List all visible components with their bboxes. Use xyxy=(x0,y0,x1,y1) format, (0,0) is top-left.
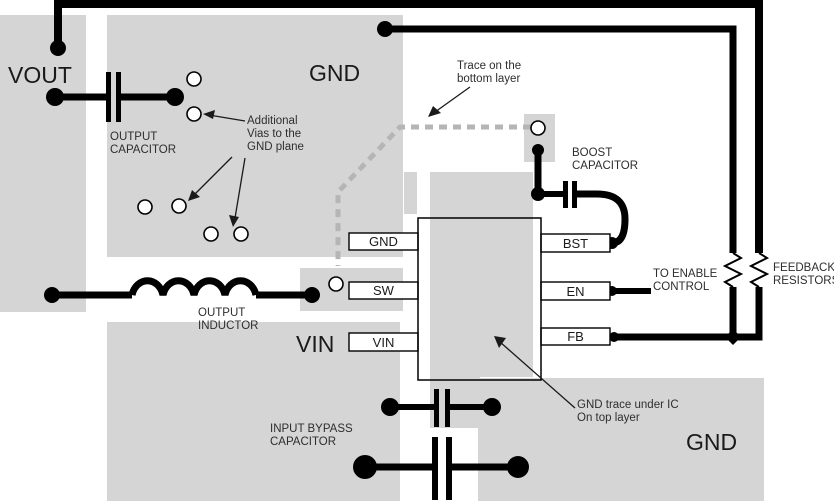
output-capacitor-label: CAPACITOR xyxy=(110,144,176,156)
gnd-via xyxy=(234,227,248,241)
input-cap1-plate-left xyxy=(434,389,439,427)
vin-label: VIN xyxy=(296,331,334,357)
gnd-plane-bridge xyxy=(404,172,417,214)
additional-vias-label: GND plane xyxy=(247,141,304,153)
gnd-via xyxy=(187,107,201,121)
input-cap1-plate-right xyxy=(445,389,450,427)
gnd-via xyxy=(187,72,201,86)
sw-via xyxy=(329,277,343,291)
output-inductor-label: INDUCTOR xyxy=(198,320,258,332)
bottom-trace-arrow-head xyxy=(428,106,441,117)
gnd-trace-under-ic-region xyxy=(430,172,533,377)
boost-capacitor-label: BOOST xyxy=(572,147,612,159)
gnd-bottom-label: GND xyxy=(686,429,737,455)
output-cap-plate-left xyxy=(106,72,111,122)
feedback-resistor-lower xyxy=(725,253,741,287)
additional-vias-label: Vias to the xyxy=(247,128,301,140)
pin-vin-label: VIN xyxy=(373,335,395,350)
gnd-via xyxy=(172,199,186,213)
pin-fb-label: FB xyxy=(567,329,584,344)
additional-vias-label: Additional xyxy=(247,115,298,127)
gnd-trace-under-ic-label: GND trace under IC xyxy=(577,399,679,411)
gnd-via xyxy=(138,200,152,214)
copper-planes xyxy=(0,15,764,501)
boost-via xyxy=(531,121,545,135)
vout-label: VOUT xyxy=(8,62,72,88)
inductor-pad-left xyxy=(44,287,60,303)
input-cap2-plate-right xyxy=(446,437,452,500)
input-cap1-pad-right xyxy=(483,398,501,416)
output-cap-plate-right xyxy=(116,72,121,122)
gnd-top-label: GND xyxy=(309,60,360,86)
gnd-via-pad xyxy=(377,21,393,37)
input-cap1-pad-left xyxy=(381,398,399,416)
output-cap-pad-right xyxy=(166,88,184,106)
fb-junction-dot xyxy=(725,329,741,345)
gnd-trace-under-ic-label: On top layer xyxy=(577,412,640,424)
vout-copper-plane xyxy=(0,15,86,312)
pcb-layout-figure: GND SW VIN BST EN FB VOUT GND xyxy=(0,0,834,503)
vout-via-pad xyxy=(50,40,66,56)
pin-bst-label: BST xyxy=(563,236,588,251)
pin-sw-label: SW xyxy=(373,283,395,298)
fb-pin-trace xyxy=(614,287,759,337)
feedback-resistors-label: RESISTORS xyxy=(773,275,834,287)
pin-en-label: EN xyxy=(566,284,584,299)
boost-capacitor-label: CAPACITOR xyxy=(572,160,638,172)
feedback-resistor-upper xyxy=(751,253,767,287)
enable-trace xyxy=(607,286,651,296)
input-cap2-plate-left xyxy=(432,437,438,500)
pin-gnd-label: GND xyxy=(369,234,398,249)
inductor-coils xyxy=(132,281,256,295)
to-enable-control-label: CONTROL xyxy=(653,281,710,293)
output-inductor-label: OUTPUT xyxy=(198,307,245,319)
trace-bottom-layer-label: bottom layer xyxy=(457,73,520,85)
to-enable-control-label: TO ENABLE xyxy=(653,268,718,280)
trace-bottom-layer-label: Trace on the xyxy=(457,60,521,72)
input-cap2-pad-right xyxy=(507,456,529,478)
layout-diagram-canvas: GND SW VIN BST EN FB VOUT GND xyxy=(0,0,834,503)
feedback-resistors-label: FEEDBACK xyxy=(773,262,834,274)
input-cap2-pad-left xyxy=(353,455,377,479)
boost-cap-plate-left xyxy=(563,181,568,208)
output-inductor xyxy=(44,277,343,303)
inductor-pad-right xyxy=(304,287,320,303)
output-cap-pad-left xyxy=(46,88,64,106)
boost-cap-plate-right xyxy=(572,181,577,208)
gnd-via xyxy=(204,227,218,241)
input-bypass-capacitor-label: CAPACITOR xyxy=(270,436,336,448)
output-capacitor-label: OUTPUT xyxy=(110,131,157,143)
bottom-trace-arrow xyxy=(435,87,470,112)
input-bypass-capacitor-label: INPUT BYPASS xyxy=(270,423,353,435)
